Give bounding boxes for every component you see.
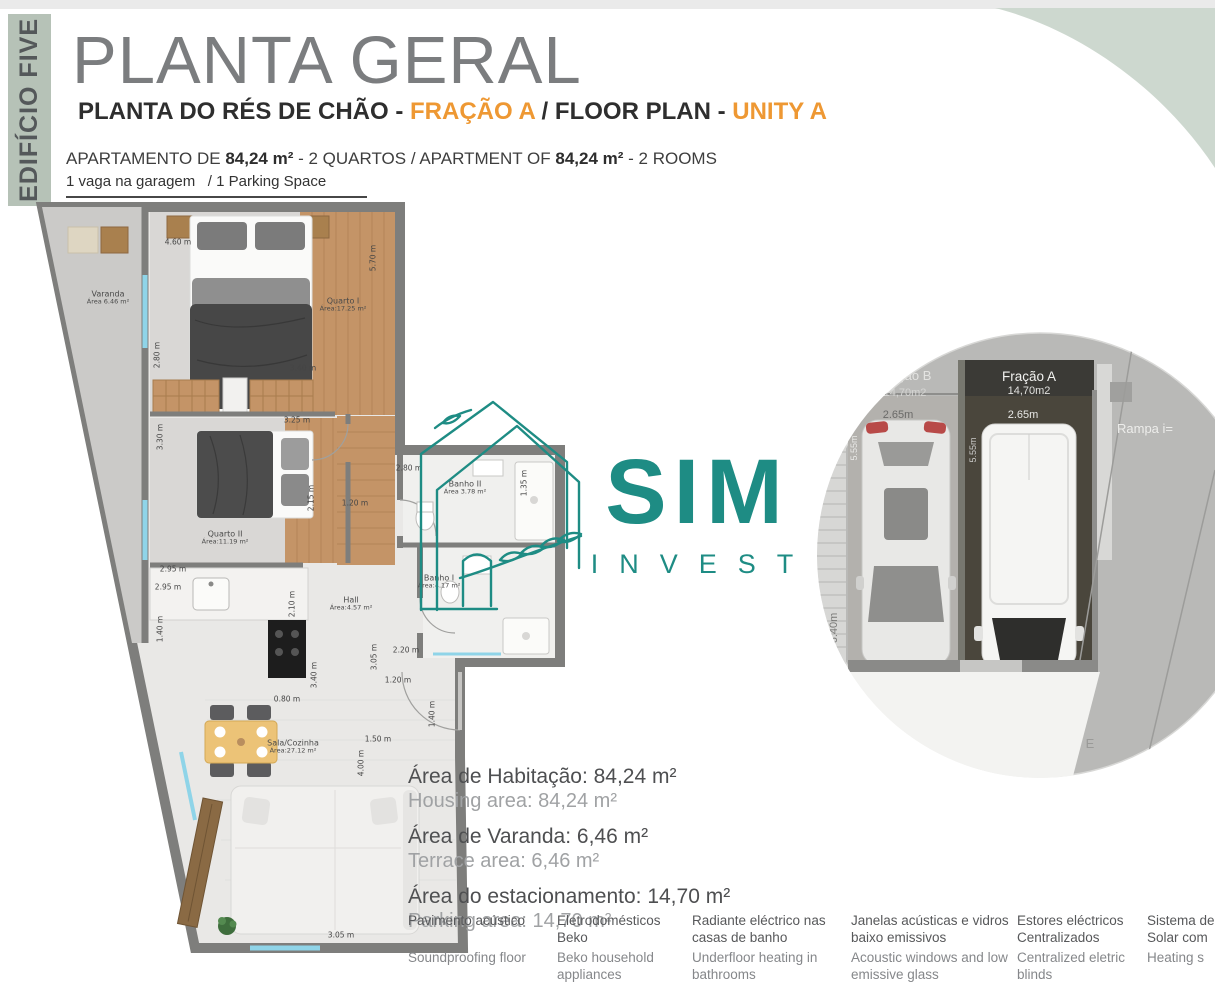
feature-pt: Estores eléctricos Centralizados bbox=[1017, 912, 1139, 949]
building-tab: EDIFÍCIO FIVE bbox=[8, 14, 51, 206]
feature-item-5: Estores eléctricos CentralizadosCentrali… bbox=[1017, 912, 1139, 983]
feature-pt: Sistema de Solar com bbox=[1147, 912, 1215, 949]
feature-en: Beko household appliances bbox=[557, 949, 679, 983]
stall-b-area: 14,70m2 bbox=[884, 387, 927, 399]
building-tab-label: EDIFÍCIO FIVE bbox=[15, 18, 44, 202]
parking-area-pt: Área do estacionamento: 14,70 m² bbox=[408, 884, 730, 909]
feature-item-6: Sistema de Solar comHeating s bbox=[1147, 912, 1215, 966]
stall-a-width: 2.65m bbox=[1008, 409, 1039, 421]
feature-item-1: Pavimento acústicoSoundproofing floor bbox=[408, 912, 543, 966]
feature-item-3: Radiante eléctrico nas casas de banhoUnd… bbox=[692, 912, 842, 983]
parking-inset: Fração B 14,70m2 Fração A 14,70m2 2.65m … bbox=[810, 330, 1215, 780]
terrace-area: Área de Varanda: 6,46 m² Terrace area: 6… bbox=[408, 824, 730, 873]
logo-word: SIM bbox=[575, 444, 820, 541]
logo-subword: INVEST bbox=[585, 549, 820, 580]
brochure-page: EDIFÍCIO FIVE PLANTA GERAL PLANTA DO RÉS… bbox=[0, 0, 1215, 1000]
terrace-area-en: Terrace area: 6,46 m² bbox=[408, 849, 730, 873]
feature-en: Soundproofing floor bbox=[408, 949, 543, 966]
parking-spec-line: 1 vaga na garagem / 1 Parking Space bbox=[66, 173, 367, 198]
stall-a-label: Fração A bbox=[1002, 369, 1056, 384]
stall-a-depth: 5.55m bbox=[968, 437, 978, 462]
feature-en: Acoustic windows and low emissive glass bbox=[851, 949, 1009, 983]
feature-en: Underfloor heating in bathrooms bbox=[692, 949, 842, 983]
feature-item-2: Eletrodomésticos BekoBeko household appl… bbox=[557, 912, 679, 983]
feature-pt: Eletrodomésticos Beko bbox=[557, 912, 679, 949]
apartment-spec-line: APARTAMENTO DE 84,24 m² - 2 QUARTOS / AP… bbox=[66, 149, 717, 169]
unity-accent: UNITY A bbox=[732, 98, 827, 125]
stall-b-label: Fração B bbox=[879, 368, 932, 383]
housing-area-pt: Área de Habitação: 84,24 m² bbox=[408, 764, 730, 789]
ramp-label: Rampa i= bbox=[1117, 421, 1173, 436]
feature-pt: Radiante eléctrico nas casas de banho bbox=[692, 912, 842, 949]
feature-en: Centralized eletric blinds bbox=[1017, 949, 1139, 983]
housing-area-en: Housing area: 84,24 m² bbox=[408, 789, 730, 813]
housing-area: Área de Habitação: 84,24 m² Housing area… bbox=[408, 764, 730, 813]
fraction-accent: FRAÇÃO A bbox=[410, 98, 535, 125]
stall-a-area: 14,70m2 bbox=[1008, 385, 1051, 397]
sage-corner-shape bbox=[990, 6, 1215, 176]
sim-invest-logo: SIM INVEST bbox=[575, 444, 820, 580]
feature-pt: Janelas acústicas e vidros baixo emissiv… bbox=[851, 912, 1009, 949]
feature-en: Heating s bbox=[1147, 949, 1215, 966]
stall-b-width: 2.65m bbox=[883, 409, 914, 421]
stall-b-depth: 5.55m bbox=[849, 435, 859, 460]
page-title: PLANTA GERAL bbox=[72, 22, 582, 99]
features-row: Pavimento acústicoSoundproofing floorEle… bbox=[0, 912, 1215, 1000]
sim-invest-house-icon bbox=[405, 398, 595, 618]
page-subtitle: PLANTA DO RÉS DE CHÃO - FRAÇÃO A / FLOOR… bbox=[78, 98, 827, 126]
corner-e-label: E bbox=[1086, 736, 1095, 751]
feature-item-4: Janelas acústicas e vidros baixo emissiv… bbox=[851, 912, 1009, 983]
garage-side-dim: 6.40m bbox=[828, 613, 840, 644]
feature-pt: Pavimento acústico bbox=[408, 912, 543, 949]
terrace-area-pt: Área de Varanda: 6,46 m² bbox=[408, 824, 730, 849]
